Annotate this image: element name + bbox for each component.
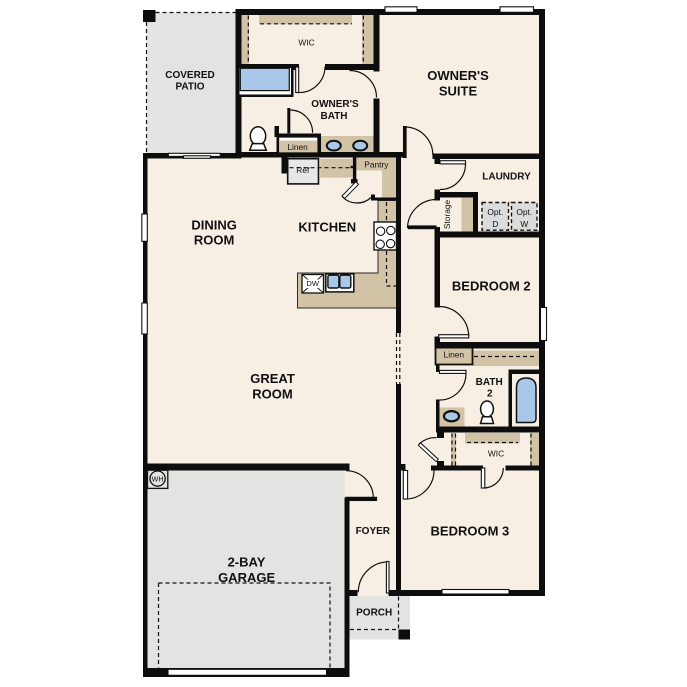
svg-text:WH: WH [152,474,164,483]
svg-text:2-BAY: 2-BAY [228,555,266,570]
svg-text:Linen: Linen [444,350,465,360]
svg-text:D: D [492,219,498,229]
svg-text:Ref: Ref [296,165,310,175]
svg-text:Linen: Linen [287,142,308,152]
svg-text:PATIO: PATIO [175,82,204,93]
svg-text:SUITE: SUITE [439,83,478,98]
svg-text:KITCHEN: KITCHEN [298,219,356,234]
svg-text:Storage: Storage [442,199,452,229]
svg-text:BEDROOM 2: BEDROOM 2 [452,279,531,294]
svg-text:GARAGE: GARAGE [218,570,275,585]
svg-text:GREAT: GREAT [250,371,295,386]
svg-text:W: W [520,219,528,229]
svg-text:Opt.: Opt. [487,207,503,217]
svg-text:OWNER'S: OWNER'S [311,99,359,110]
svg-text:Opt.: Opt. [516,207,532,217]
svg-text:BATH: BATH [320,111,347,122]
svg-text:DW: DW [306,279,319,288]
svg-text:2: 2 [487,388,493,399]
svg-text:BATH: BATH [476,377,503,388]
svg-text:BEDROOM 3: BEDROOM 3 [431,523,510,538]
svg-text:WIC: WIC [488,449,504,459]
svg-text:DINING: DINING [191,218,237,233]
svg-text:PORCH: PORCH [356,607,392,618]
svg-text:LAUNDRY: LAUNDRY [482,172,531,183]
svg-text:ROOM: ROOM [194,233,234,248]
svg-text:Pantry: Pantry [364,159,389,169]
svg-text:WIC: WIC [298,37,314,47]
svg-text:OWNER'S: OWNER'S [427,68,489,83]
svg-text:COVERED: COVERED [165,70,214,81]
svg-text:FOYER: FOYER [356,526,391,537]
svg-text:ROOM: ROOM [252,386,292,401]
